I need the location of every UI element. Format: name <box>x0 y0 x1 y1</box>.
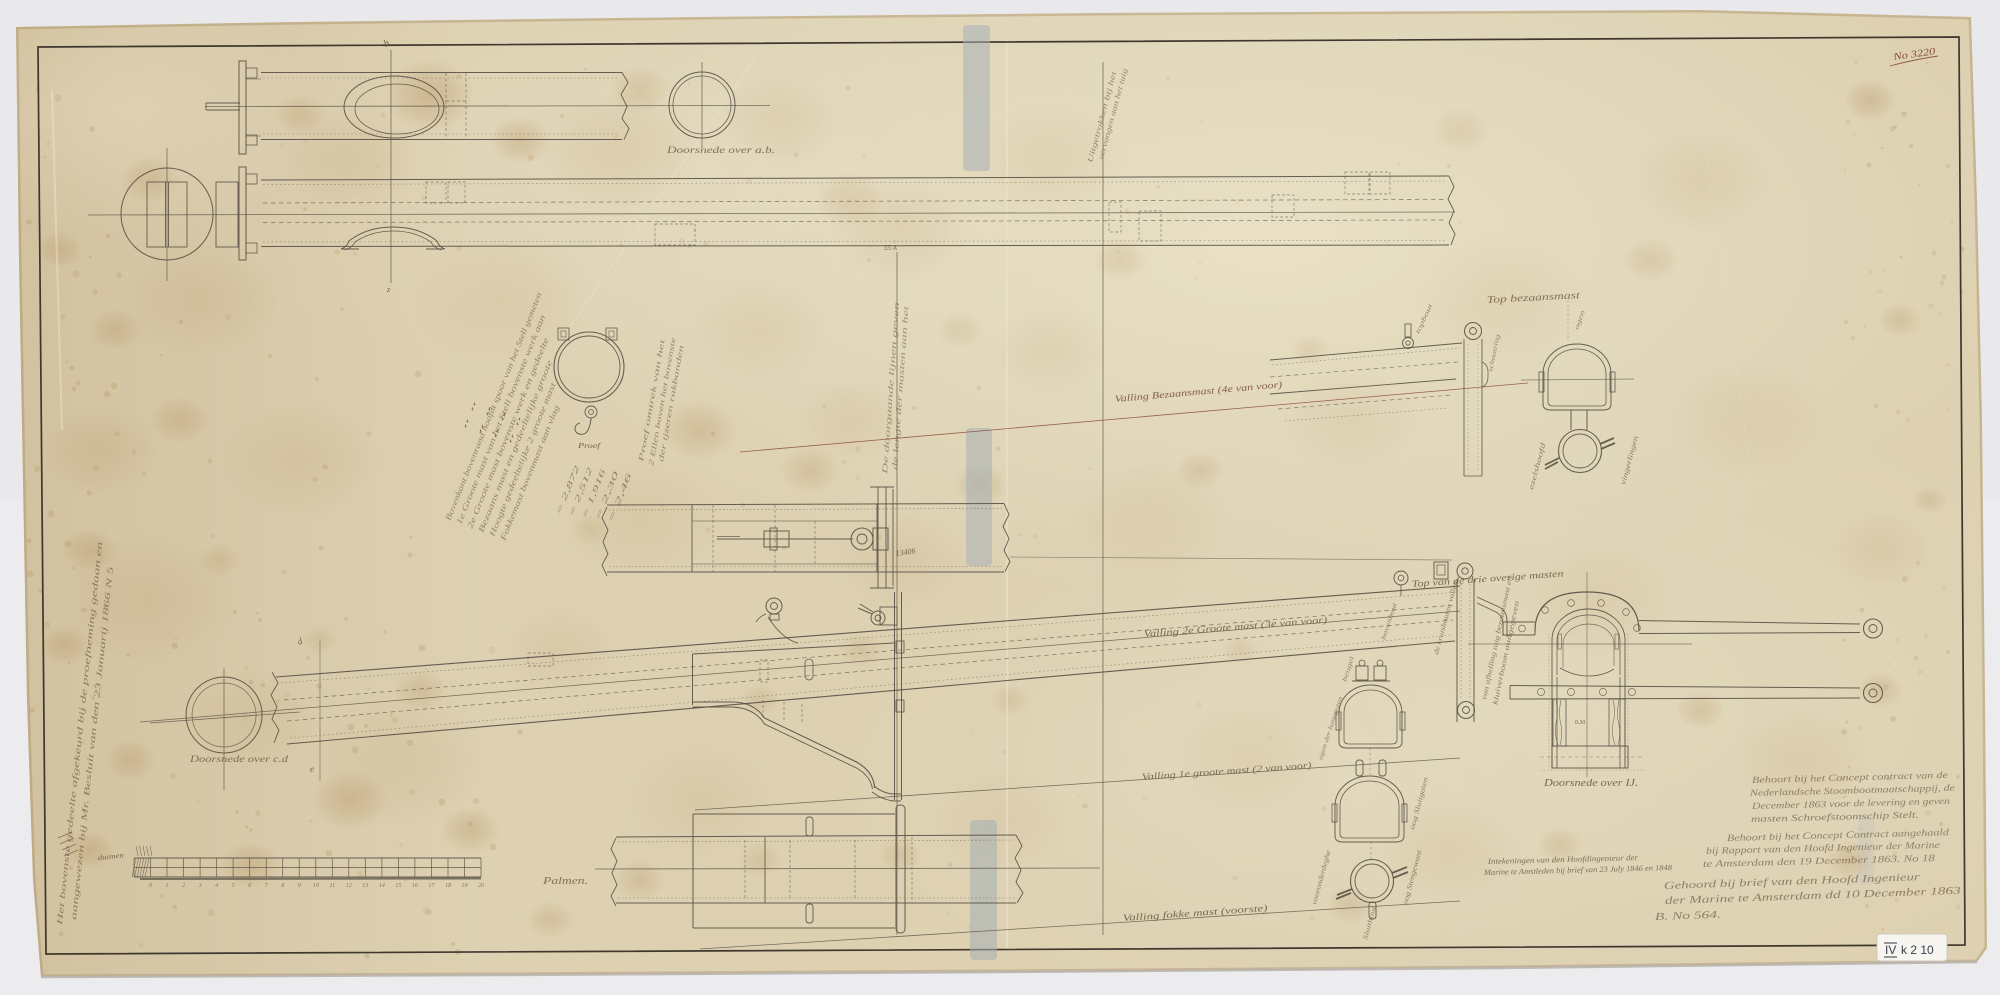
svg-text:2: 2 <box>182 883 185 889</box>
svg-text:3: 3 <box>198 883 202 889</box>
svg-text:8: 8 <box>281 883 284 889</box>
svg-text:0: 0 <box>149 883 152 889</box>
svg-text:19: 19 <box>462 883 468 889</box>
svg-text:16: 16 <box>412 883 418 889</box>
svg-text:IV: IV <box>1885 943 1896 957</box>
svg-text:14: 14 <box>379 882 385 889</box>
svg-text:15: 15 <box>395 883 401 889</box>
svg-text:20: 20 <box>478 883 484 889</box>
svg-text:9: 9 <box>298 883 301 889</box>
svg-text:1: 1 <box>166 883 169 889</box>
svg-text:Doorsnede over IJ.: Doorsnede over IJ. <box>1543 778 1638 789</box>
svg-text:Proef: Proef <box>577 442 602 450</box>
svg-text:11: 11 <box>330 883 336 889</box>
svg-text:e: e <box>310 764 314 774</box>
svg-text:17: 17 <box>428 883 435 889</box>
svg-text:55 A: 55 A <box>884 244 898 252</box>
svg-text:Palmen.: Palmen. <box>542 876 588 887</box>
svg-text:6: 6 <box>248 883 251 889</box>
svg-text:12: 12 <box>346 883 352 889</box>
svg-text:Doorsnede over c.d: Doorsnede over c.d <box>189 755 289 765</box>
svg-text:4: 4 <box>215 882 218 889</box>
svg-text:13: 13 <box>362 883 368 889</box>
svg-text:5: 5 <box>232 883 235 889</box>
svg-text:0.30: 0.30 <box>1575 720 1586 726</box>
svg-text:Doorsnede over a.b.: Doorsnede over a.b. <box>666 146 775 156</box>
svg-text:k 2 10: k 2 10 <box>1901 943 1934 957</box>
svg-text:10: 10 <box>313 883 319 889</box>
svg-text:B. No 564.: B. No 564. <box>1655 910 1721 923</box>
svg-text:18: 18 <box>445 883 451 889</box>
